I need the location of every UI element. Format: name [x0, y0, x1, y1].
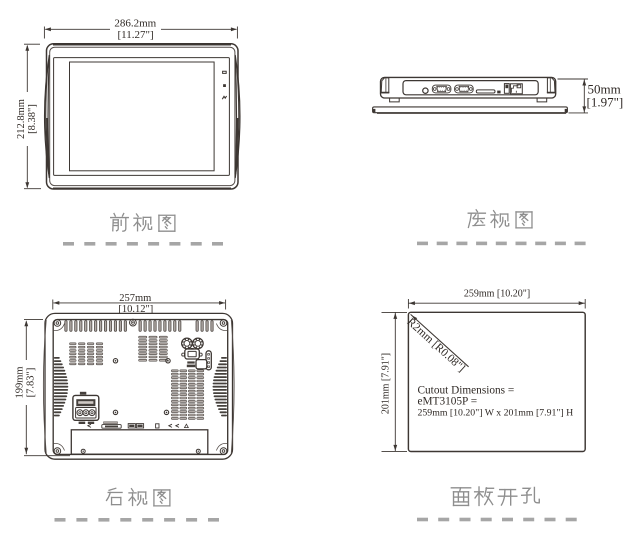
svg-text:[8.38"]: [8.38"]	[27, 104, 38, 134]
svg-text:201mm [7.91"]: 201mm [7.91"]	[380, 353, 391, 414]
svg-text:259mm [10.20"]: 259mm [10.20"]	[464, 288, 530, 299]
svg-text:eMT3105P =: eMT3105P =	[418, 396, 478, 408]
svg-text:[7.83"]: [7.83"]	[25, 368, 36, 398]
svg-text:[1.97"]: [1.97"]	[587, 95, 624, 110]
svg-text:199mm: 199mm	[15, 366, 26, 398]
svg-text:[11.27"]: [11.27"]	[118, 29, 154, 41]
svg-text:259mm [10.20"] W x 201mm [7.91: 259mm [10.20"] W x 201mm [7.91"] H	[418, 407, 574, 418]
svg-text:212.8mm: 212.8mm	[16, 99, 27, 139]
svg-text:286.2mm: 286.2mm	[114, 17, 156, 29]
